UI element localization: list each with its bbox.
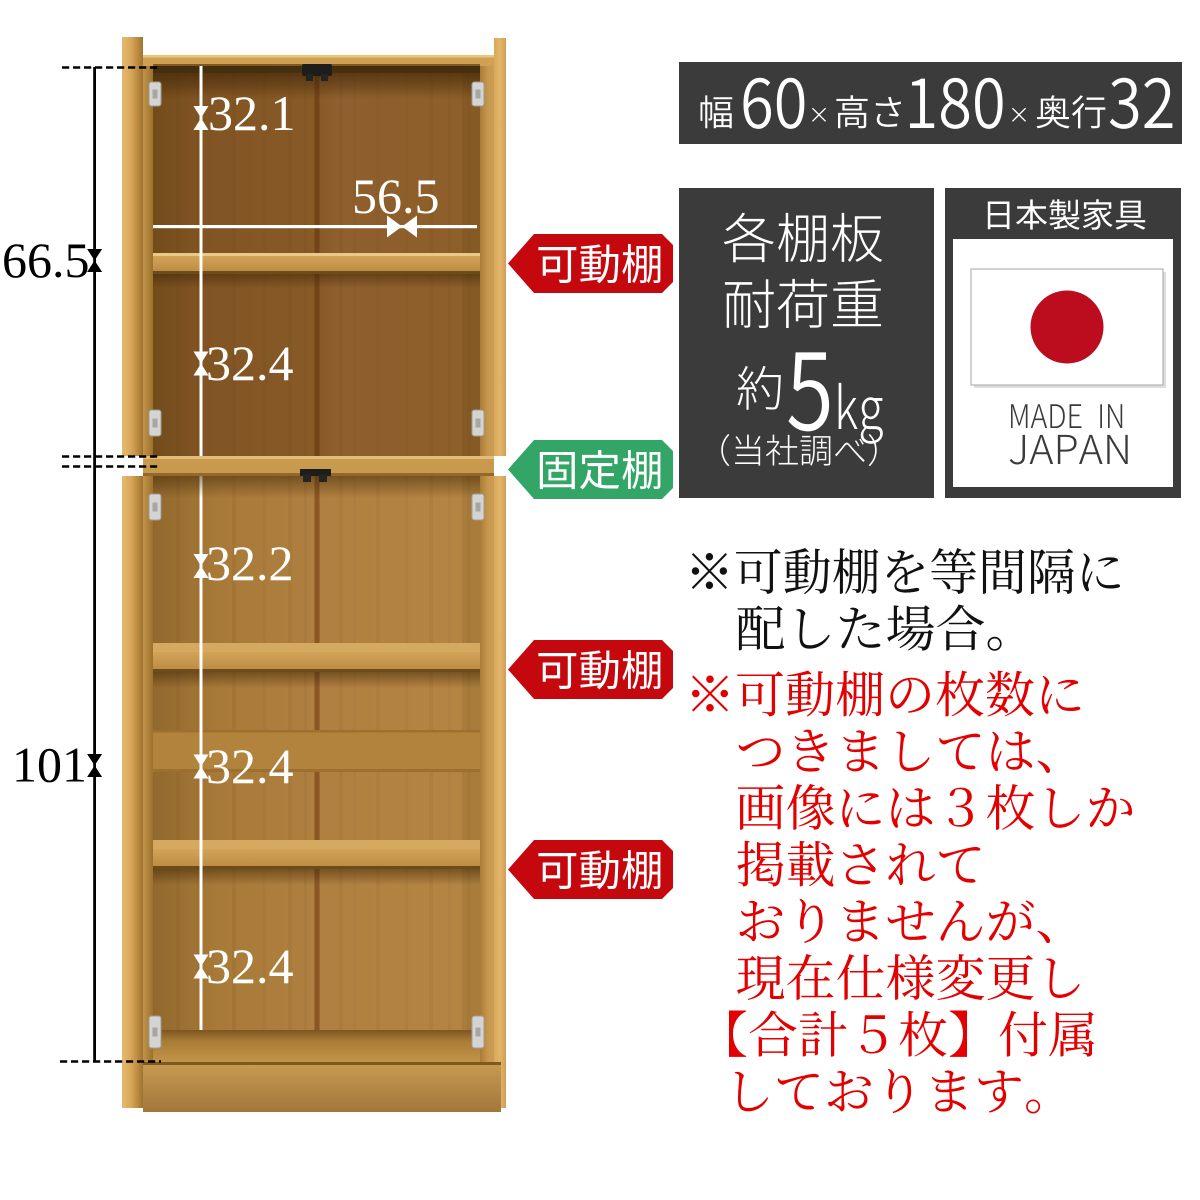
svg-text:56.5: 56.5 — [352, 168, 440, 224]
svg-text:32.4: 32.4 — [206, 938, 294, 994]
svg-text:101: 101 — [12, 737, 87, 793]
svg-text:32.1: 32.1 — [208, 85, 296, 141]
svg-text:66.5: 66.5 — [2, 232, 90, 288]
svg-text:32.2: 32.2 — [206, 535, 294, 591]
svg-text:32.4: 32.4 — [206, 738, 294, 794]
svg-text:32.4: 32.4 — [206, 335, 294, 391]
